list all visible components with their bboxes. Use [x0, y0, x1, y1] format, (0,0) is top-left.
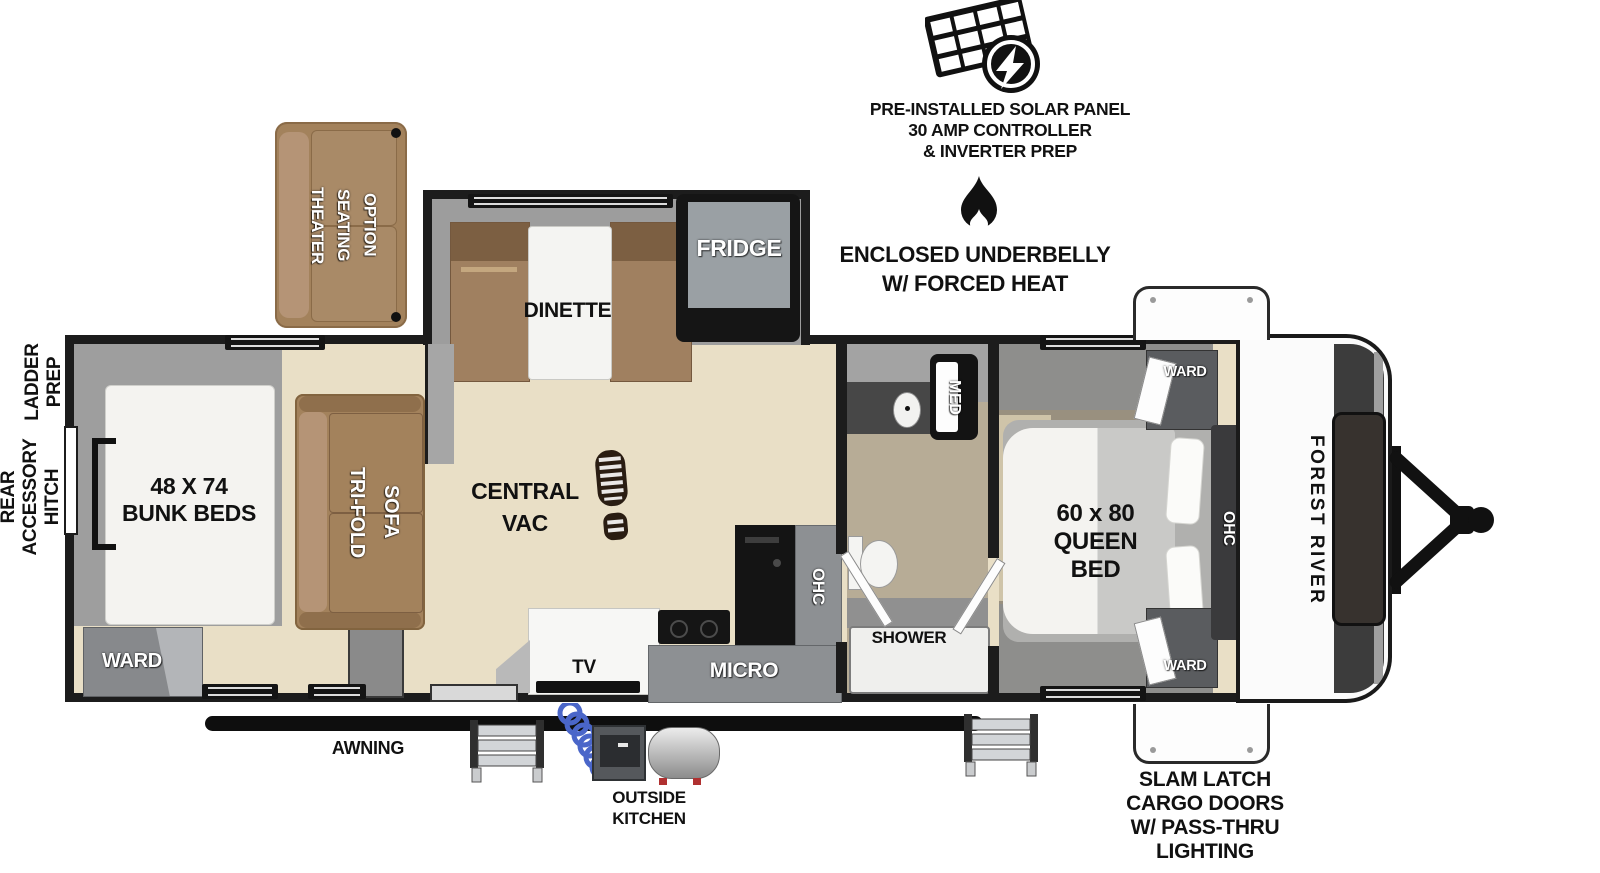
slide-return-wall [425, 344, 454, 464]
rear-accessory-hitch-label: REAR ACCESSORY HITCH [0, 426, 66, 568]
tv-label: TV [552, 656, 616, 680]
front-wardrobe-bottom: WARD [1146, 608, 1218, 688]
trifold-sofa: TRI-FOLD SOFA [295, 394, 425, 630]
rear-window [64, 426, 78, 535]
med-cabinet: MED [930, 354, 978, 440]
slam-latch-label: SLAM LATCH CARGO DOORS W/ PASS-THRU LIGH… [1055, 766, 1355, 866]
underbelly-callout-text: ENCLOSED UNDERBELLY W/ FORCED HEAT [745, 240, 1205, 298]
shower-label: SHOWER [849, 626, 969, 650]
cargo-door-top [1133, 286, 1270, 340]
outside-kitchen-label: OUTSIDE KITCHEN [579, 786, 719, 830]
trifold-sofa-label: TRI-FOLD SOFA [329, 426, 419, 598]
entry-door [430, 684, 518, 702]
bath-wall-left [836, 642, 847, 693]
bunk-wardrobe: WARD [83, 627, 203, 697]
flame-icon [956, 174, 1002, 236]
bath-vanity [847, 382, 935, 434]
floorplan-canvas: PRE-INSTALLED SOLAR PANEL 30 AMP CONTROL… [0, 0, 1600, 873]
bottom-window-2 [308, 684, 366, 699]
cap-rock-guard [1332, 412, 1386, 626]
bedroom-top-window [1040, 335, 1146, 350]
bedroom-bottom-window [1040, 686, 1146, 701]
pantry-appliance [735, 525, 795, 645]
bench-backrest [451, 223, 529, 261]
screw [1247, 297, 1253, 303]
front-wardrobe-bottom-label: WARD [1157, 657, 1213, 675]
stove [658, 610, 730, 644]
bath-wall-left [836, 344, 847, 554]
front-wardrobe-top: WARD [1146, 350, 1218, 430]
central-vac-label: CENTRAL VAC [455, 473, 595, 541]
bath-wall-right [988, 344, 999, 558]
theater-seating-sofa: THEATER SEATING OPTION [275, 122, 407, 328]
kitchen-ohc-label: OHC [802, 548, 834, 624]
screw [1247, 747, 1253, 753]
sofa-armrest [299, 396, 421, 412]
solar-callout-text: PRE-INSTALLED SOLAR PANEL 30 AMP CONTROL… [790, 99, 1210, 162]
bunk-top-window [225, 335, 325, 350]
sink-drain [905, 406, 910, 411]
dinette-label: DINETTE [500, 298, 635, 324]
dinette-window [468, 194, 673, 208]
solar-panel-icon [925, 0, 1045, 98]
tv-unit [536, 681, 640, 693]
entry-steps-icon [468, 720, 546, 784]
theater-seating-label: THEATER SEATING OPTION [299, 138, 387, 312]
bunk-wardrobe-label: WARD [90, 648, 174, 674]
fridge: FRIDGE [676, 194, 800, 342]
fridge-label: FRIDGE [688, 228, 790, 268]
awning-label: AWNING [298, 736, 438, 760]
outside-kitchen-sink [592, 725, 646, 781]
tank-foot [693, 778, 701, 785]
burner [700, 620, 718, 638]
queen-bed-label: 60 x 80 QUEEN BED [1018, 498, 1173, 586]
ladder-prep-label: LADDER PREP [20, 330, 68, 434]
cargo-door-bottom [1133, 704, 1270, 764]
microwave-label: MICRO [660, 658, 828, 684]
burner [670, 620, 688, 638]
med-label: MED [936, 360, 972, 434]
hitch-icon [1382, 440, 1494, 600]
faucet [618, 743, 628, 747]
bottom-window-1 [202, 684, 278, 699]
tank-foot [659, 778, 667, 785]
sofa-armrest [299, 612, 421, 628]
appliance-handle [745, 537, 779, 543]
theater-sofa-foot [391, 312, 401, 322]
front-wardrobe-top-label: WARD [1157, 363, 1213, 381]
bunk-bed-label: 48 X 74 BUNK BEDS [105, 470, 273, 530]
screw [1150, 297, 1156, 303]
brand-label: FOREST RIVER [1298, 390, 1334, 650]
screw [1150, 747, 1156, 753]
outside-kitchen-tank [648, 727, 720, 779]
sink-basin [600, 735, 640, 767]
rear-grab-handle [92, 438, 116, 550]
appliance-knob [773, 559, 781, 567]
theater-sofa-foot [391, 128, 401, 138]
bench-trim [461, 267, 517, 272]
front-cap: FOREST RIVER [1236, 334, 1392, 703]
bath-wall-right [988, 646, 999, 693]
bootprint-icon [589, 448, 637, 543]
sofa-back [299, 412, 327, 612]
entry-steps-icon [962, 714, 1040, 778]
